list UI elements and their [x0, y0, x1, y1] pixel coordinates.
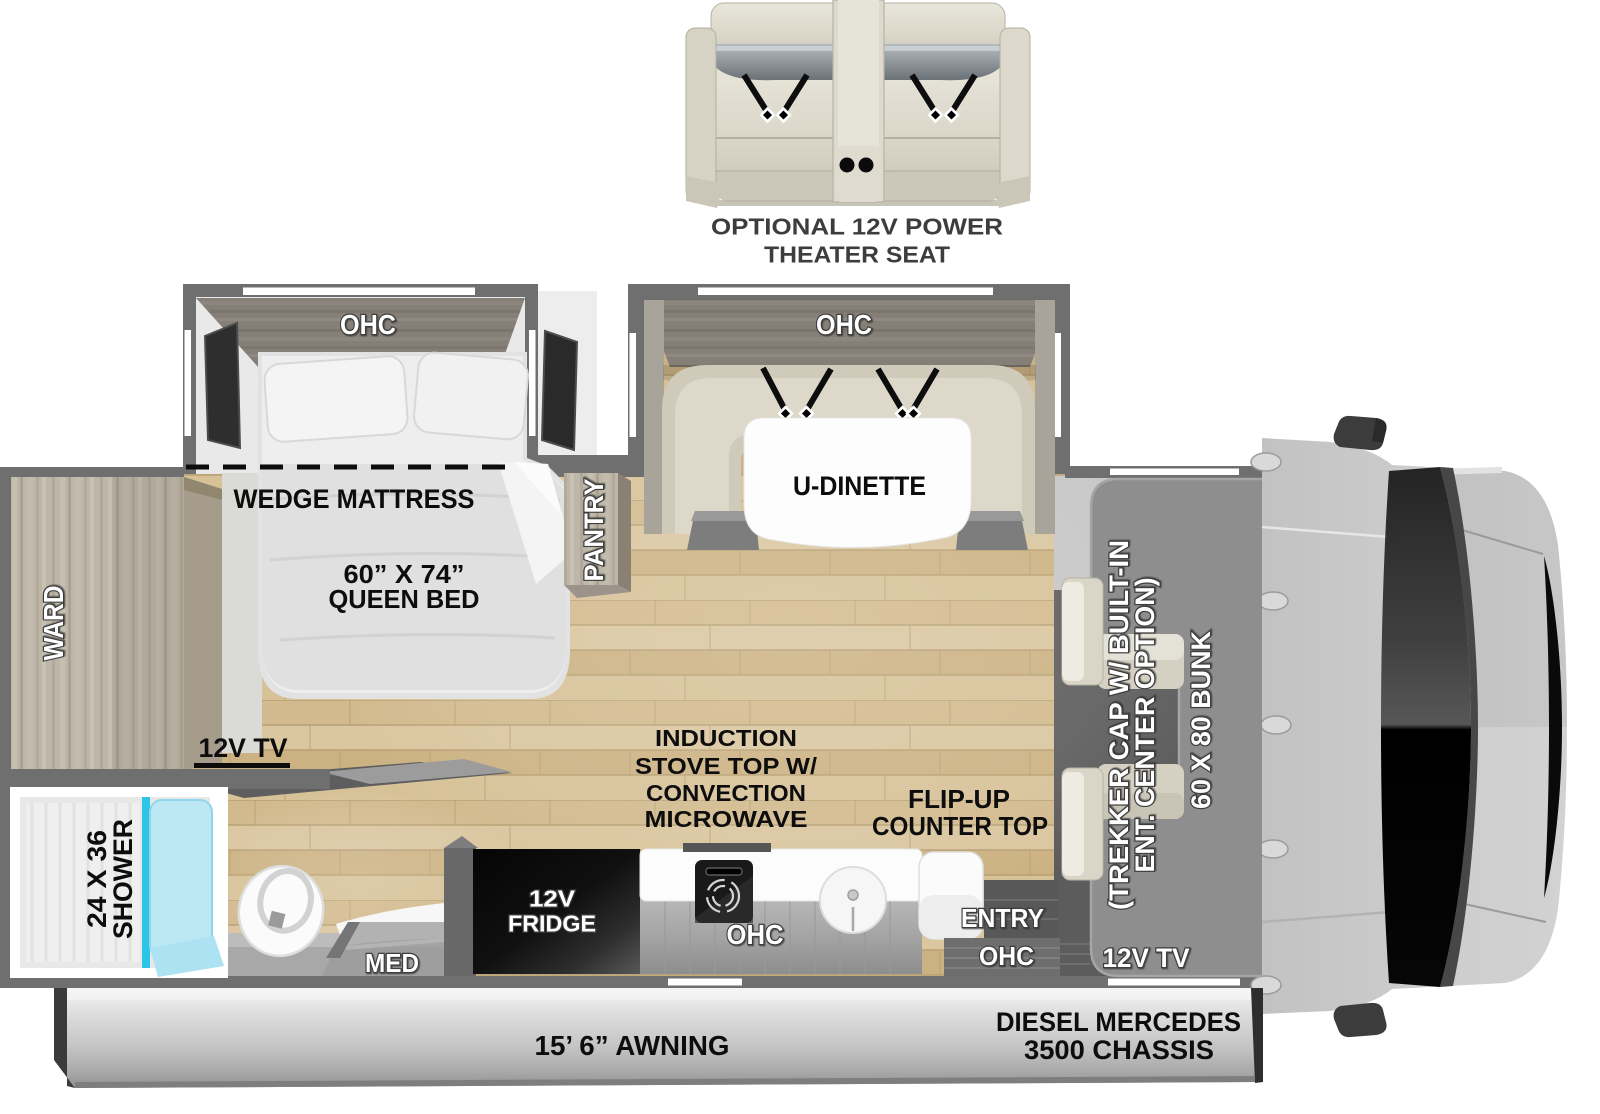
svg-text:DIESEL MERCEDES: DIESEL MERCEDES [996, 1007, 1241, 1037]
svg-text:WARD: WARD [38, 586, 69, 661]
svg-text:3500 CHASSIS: 3500 CHASSIS [1024, 1035, 1214, 1065]
svg-text:INDUCTION: INDUCTION [655, 725, 797, 751]
svg-text:12V TV: 12V TV [1103, 943, 1190, 973]
svg-text:ENT. CENTER OPTION): ENT. CENTER OPTION) [1130, 578, 1160, 873]
svg-text:MICROWAVE: MICROWAVE [645, 806, 808, 832]
svg-text:ENTRY: ENTRY [961, 903, 1044, 933]
svg-text:FRIDGE: FRIDGE [508, 911, 596, 937]
svg-text:WEDGE MATTRESS: WEDGE MATTRESS [234, 484, 475, 514]
svg-text:12V TV: 12V TV [199, 733, 288, 763]
svg-text:QUEEN BED: QUEEN BED [329, 584, 480, 614]
svg-text:SHOWER: SHOWER [108, 819, 138, 939]
svg-text:OHC: OHC [727, 919, 784, 950]
svg-text:U-DINETTE: U-DINETTE [793, 471, 926, 501]
svg-text:CONVECTION: CONVECTION [646, 780, 806, 806]
svg-text:OPTIONAL 12V POWER: OPTIONAL 12V POWER [711, 214, 1003, 240]
svg-text:THEATER SEAT: THEATER SEAT [764, 242, 950, 268]
svg-text:MED: MED [365, 948, 419, 978]
svg-text:STOVE TOP W/: STOVE TOP W/ [635, 753, 818, 779]
svg-text:12V: 12V [529, 886, 575, 912]
svg-text:OHC: OHC [340, 309, 396, 340]
svg-text:COUNTER TOP: COUNTER TOP [872, 811, 1048, 841]
svg-text:OHC: OHC [979, 941, 1034, 971]
svg-text:FLIP-UP: FLIP-UP [908, 784, 1010, 814]
svg-text:15’ 6” AWNING: 15’ 6” AWNING [535, 1030, 730, 1061]
svg-text:60 X 80 BUNK: 60 X 80 BUNK [1186, 631, 1216, 809]
svg-text:PANTRY: PANTRY [579, 479, 609, 582]
svg-text:OHC: OHC [816, 309, 872, 340]
